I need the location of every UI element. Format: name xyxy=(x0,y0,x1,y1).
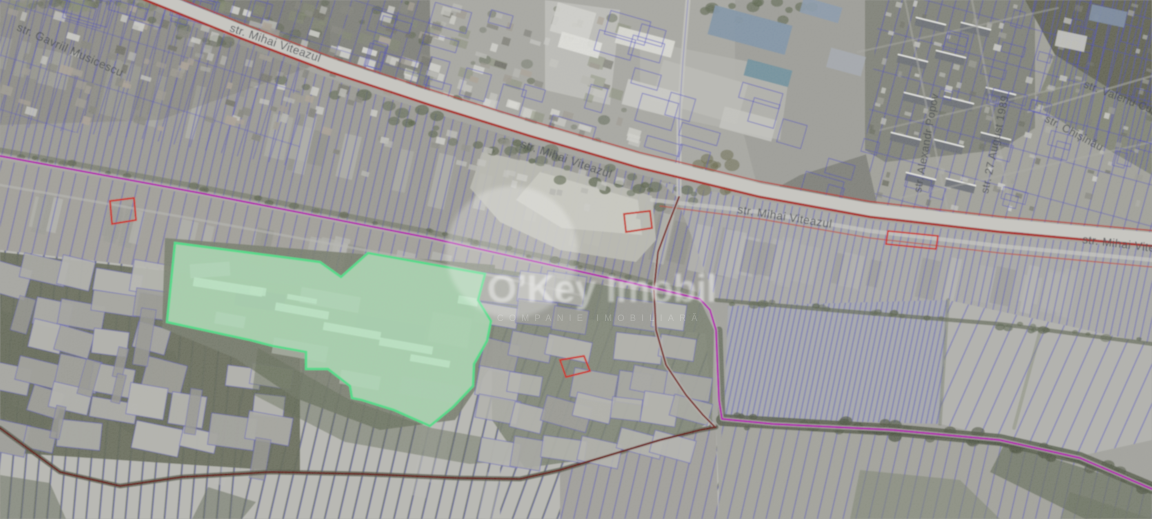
svg-text:COMPANIE IMOBILIARĂ: COMPANIE IMOBILIARĂ xyxy=(497,313,703,323)
svg-text:O’Key Imobil: O’Key Imobil xyxy=(487,268,716,311)
